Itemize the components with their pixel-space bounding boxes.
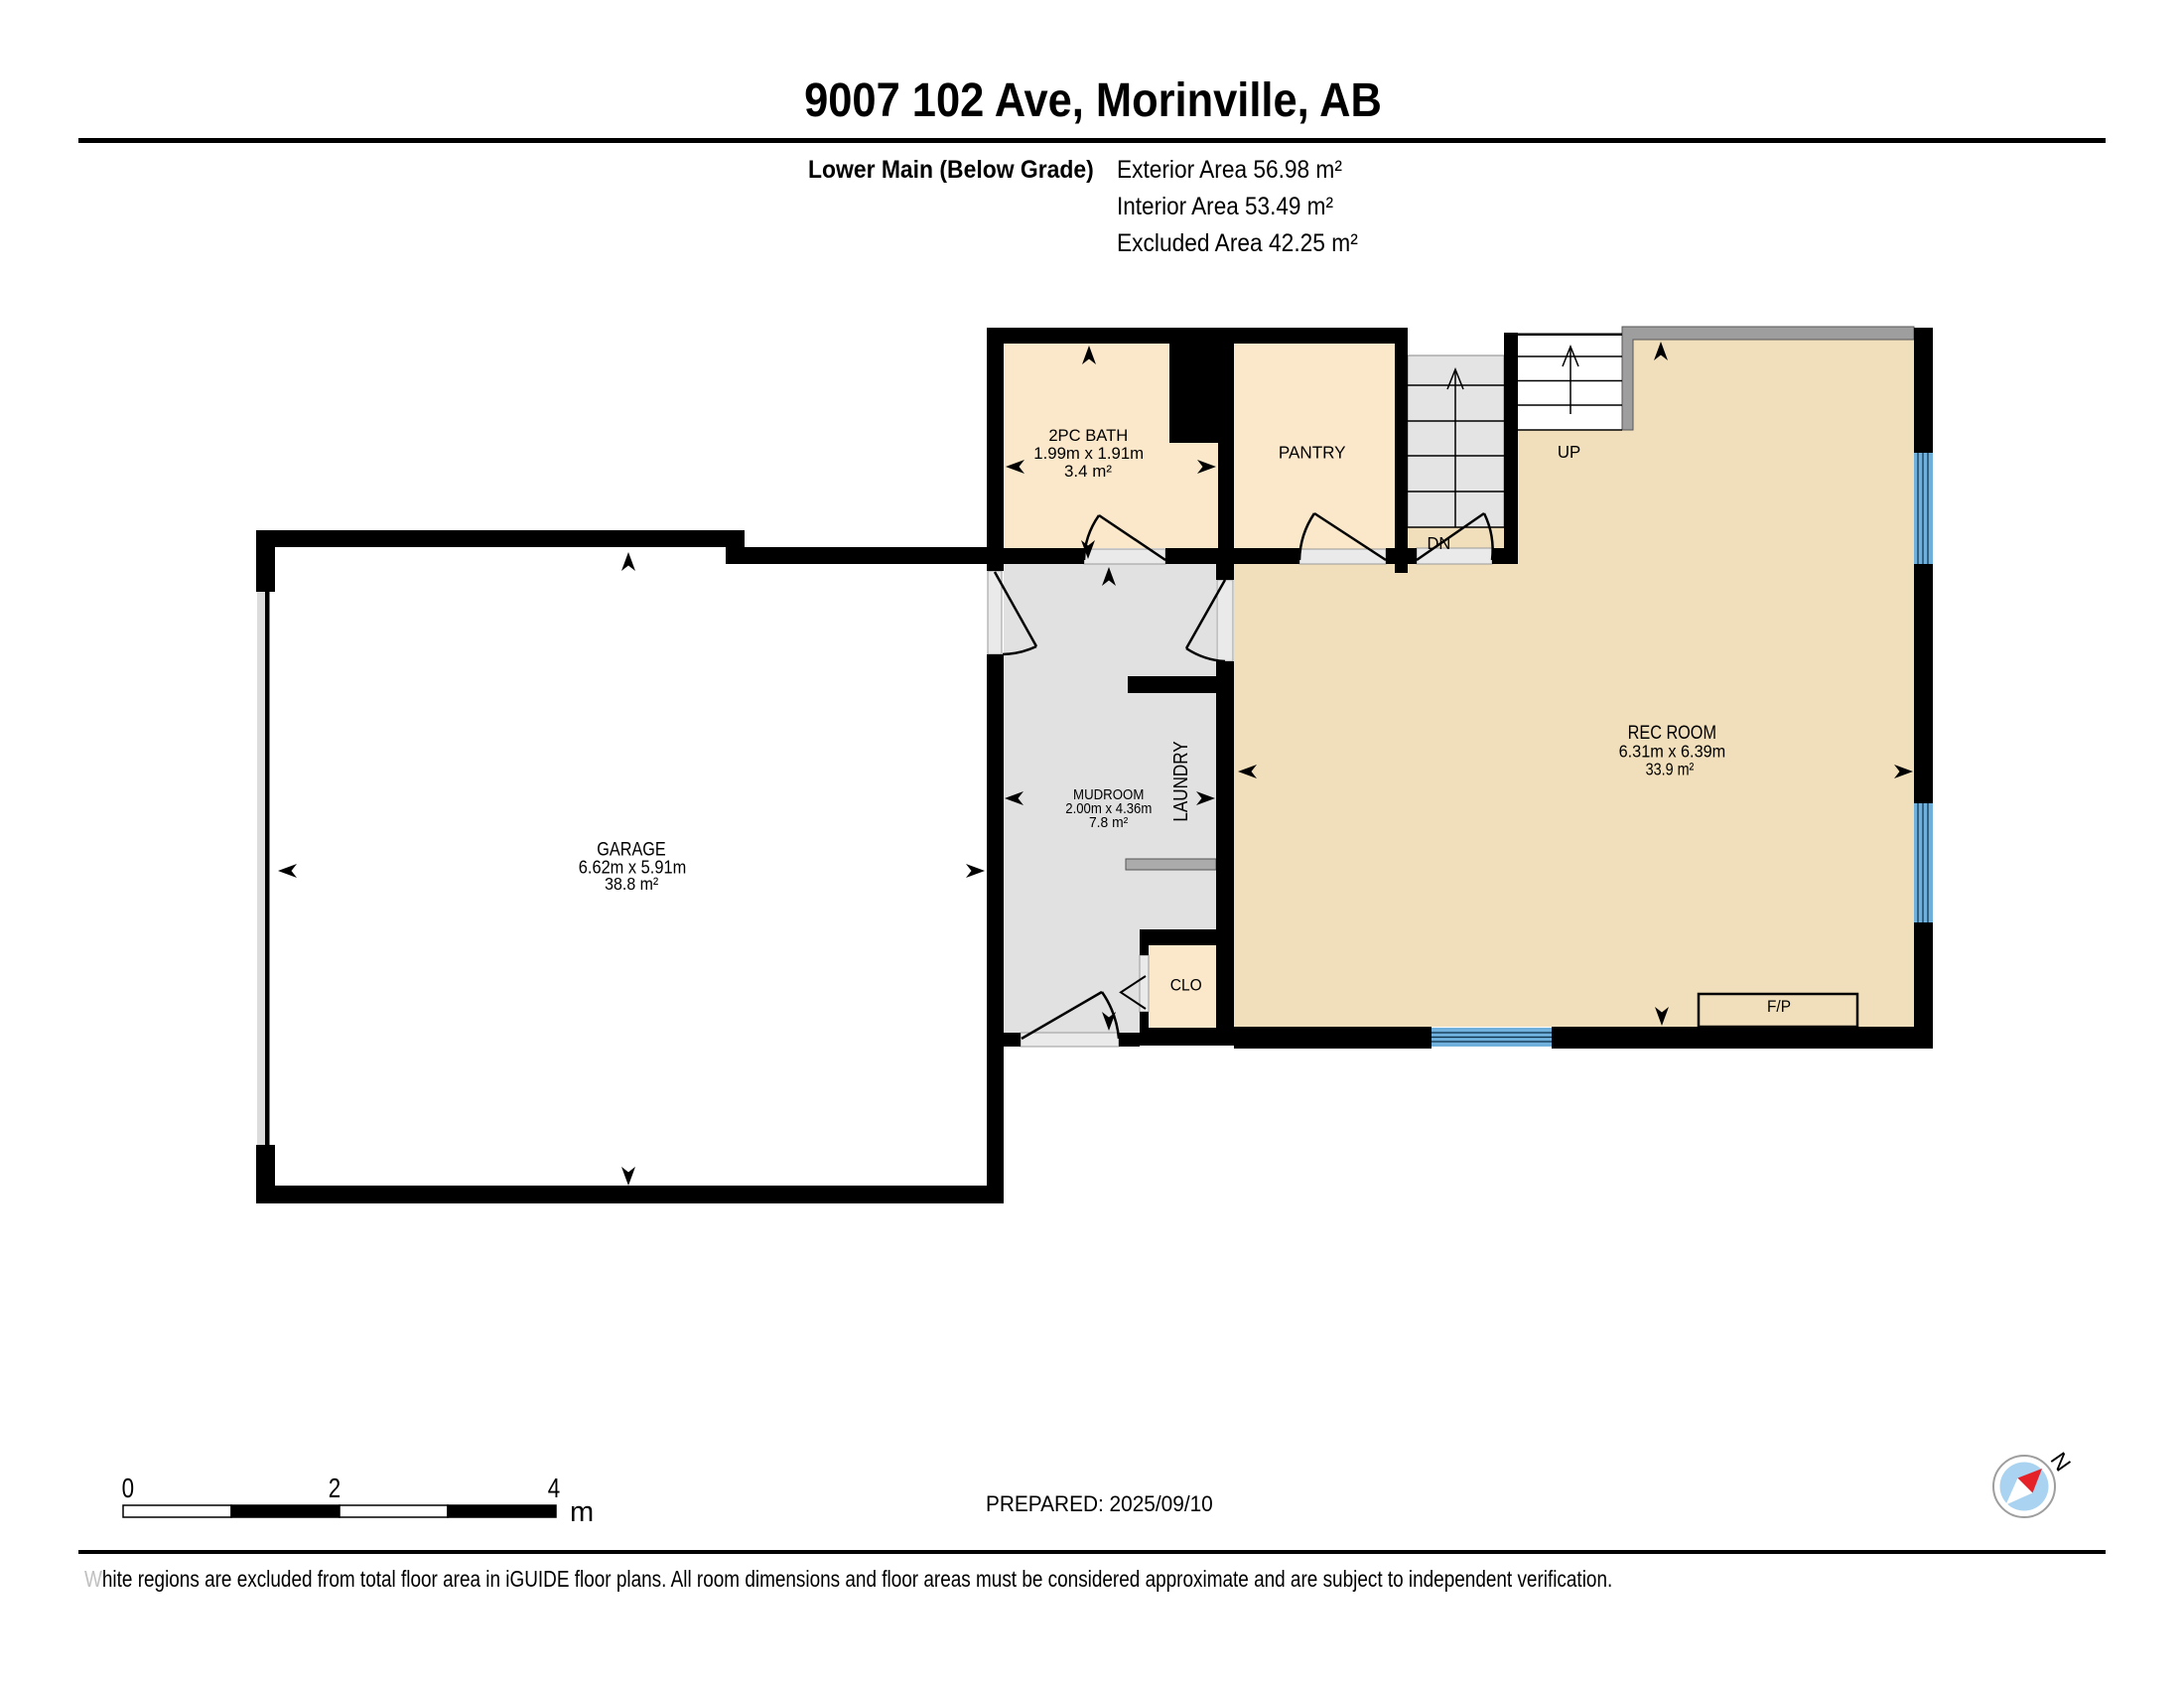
svg-text:3.4 m²: 3.4 m² [1064,462,1112,481]
svg-text:LAUNDRY: LAUNDRY [1169,741,1192,821]
svg-text:Excluded Area 42.25 m²: Excluded Area 42.25 m² [1117,229,1358,257]
svg-text:33.9 m²: 33.9 m² [1646,760,1695,779]
svg-text:0: 0 [122,1474,134,1504]
svg-text:F/P: F/P [1767,997,1791,1016]
svg-text:DN: DN [1428,532,1451,553]
svg-text:4: 4 [548,1474,560,1504]
svg-text:Lower Main (Below Grade): Lower Main (Below Grade) [808,156,1094,184]
svg-text:PANTRY: PANTRY [1279,442,1346,463]
svg-text:7.8 m²: 7.8 m² [1089,815,1129,831]
svg-text:CLO: CLO [1170,976,1202,995]
svg-text:Interior Area 53.49 m²: Interior Area 53.49 m² [1117,193,1333,220]
svg-text:9007 102 Ave, Morinville, AB: 9007 102 Ave, Morinville, AB [804,73,1382,126]
svg-text:2PC BATH: 2PC BATH [1048,426,1128,445]
svg-text:White regions are excluded fro: White regions are excluded from total fl… [84,1567,1612,1592]
svg-text:PREPARED: 2025/09/10: PREPARED: 2025/09/10 [986,1491,1213,1516]
svg-text:m: m [570,1496,594,1528]
svg-text:6.31m x 6.39m: 6.31m x 6.39m [1619,741,1726,762]
svg-text:1.99m x 1.91m: 1.99m x 1.91m [1033,444,1144,463]
svg-text:38.8 m²: 38.8 m² [605,874,658,894]
svg-text:2: 2 [329,1474,341,1504]
svg-text:Exterior Area 56.98 m²: Exterior Area 56.98 m² [1117,156,1342,184]
svg-text:UP: UP [1558,441,1580,462]
